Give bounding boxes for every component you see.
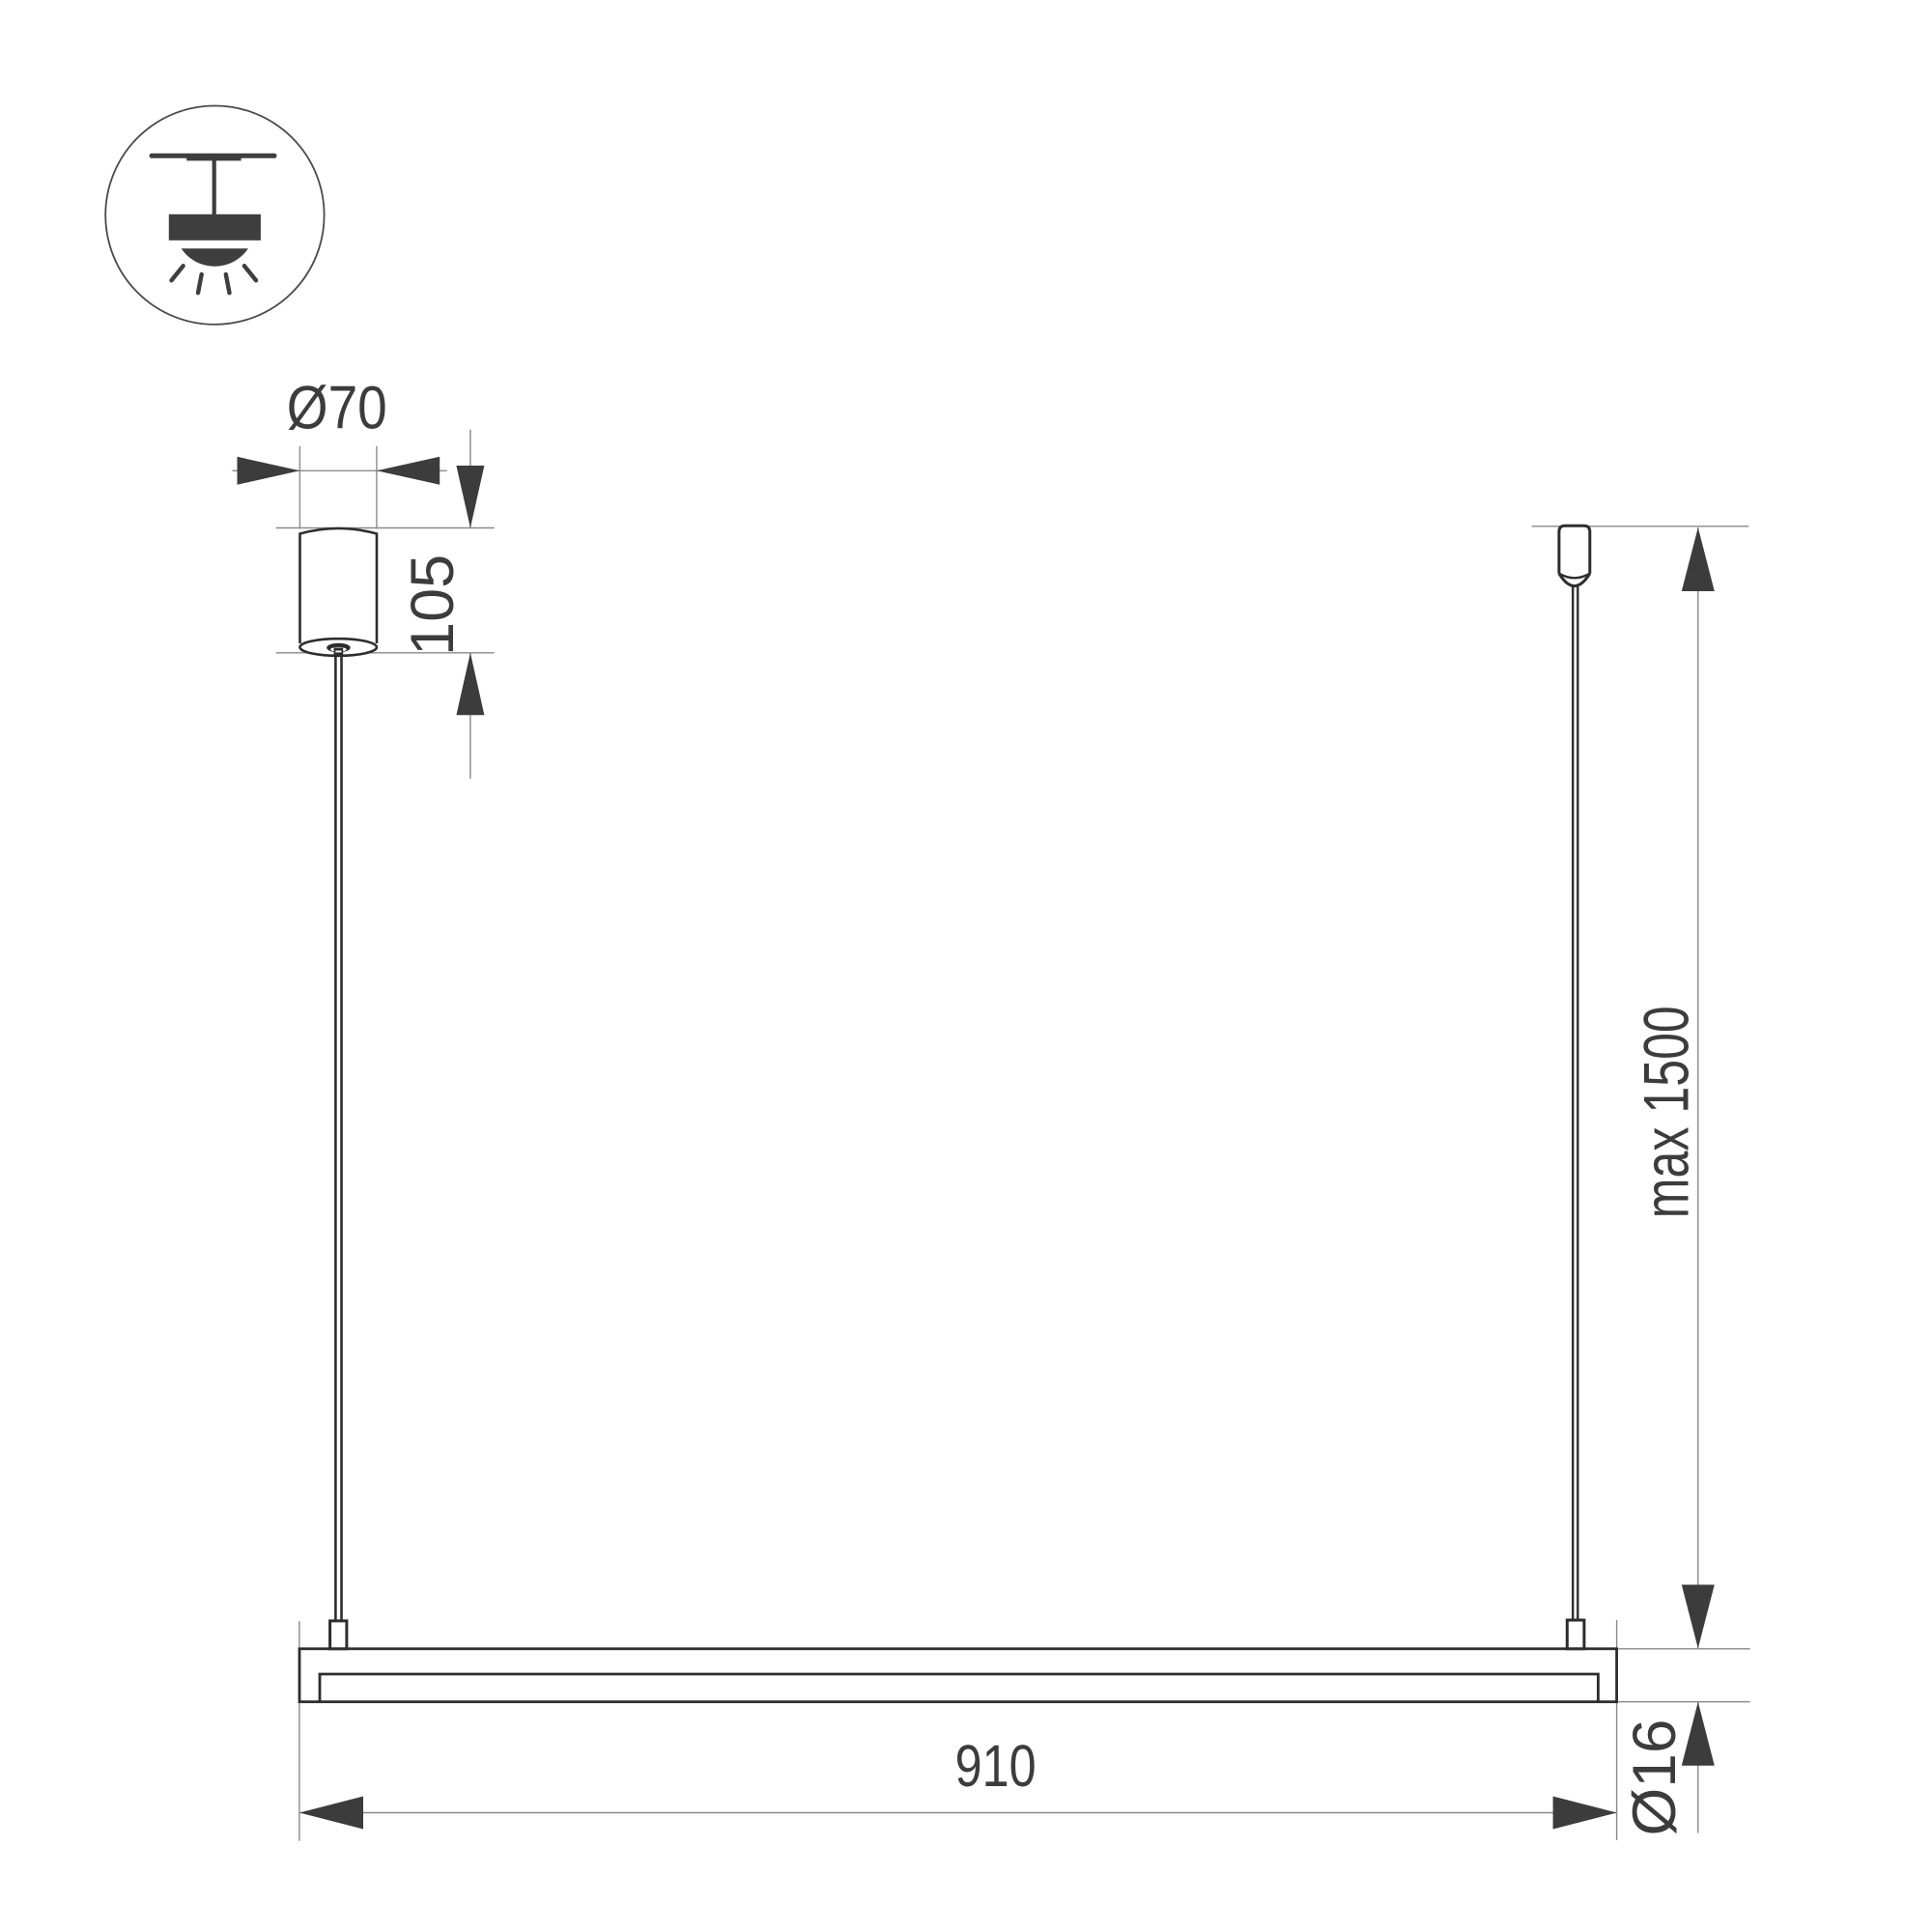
svg-text:105: 105 bbox=[399, 554, 467, 656]
svg-text:Ø16: Ø16 bbox=[1621, 1719, 1689, 1836]
svg-text:910: 910 bbox=[955, 1733, 1037, 1799]
svg-text:max 1500: max 1500 bbox=[1631, 1006, 1702, 1218]
svg-text:Ø70: Ø70 bbox=[287, 375, 387, 442]
